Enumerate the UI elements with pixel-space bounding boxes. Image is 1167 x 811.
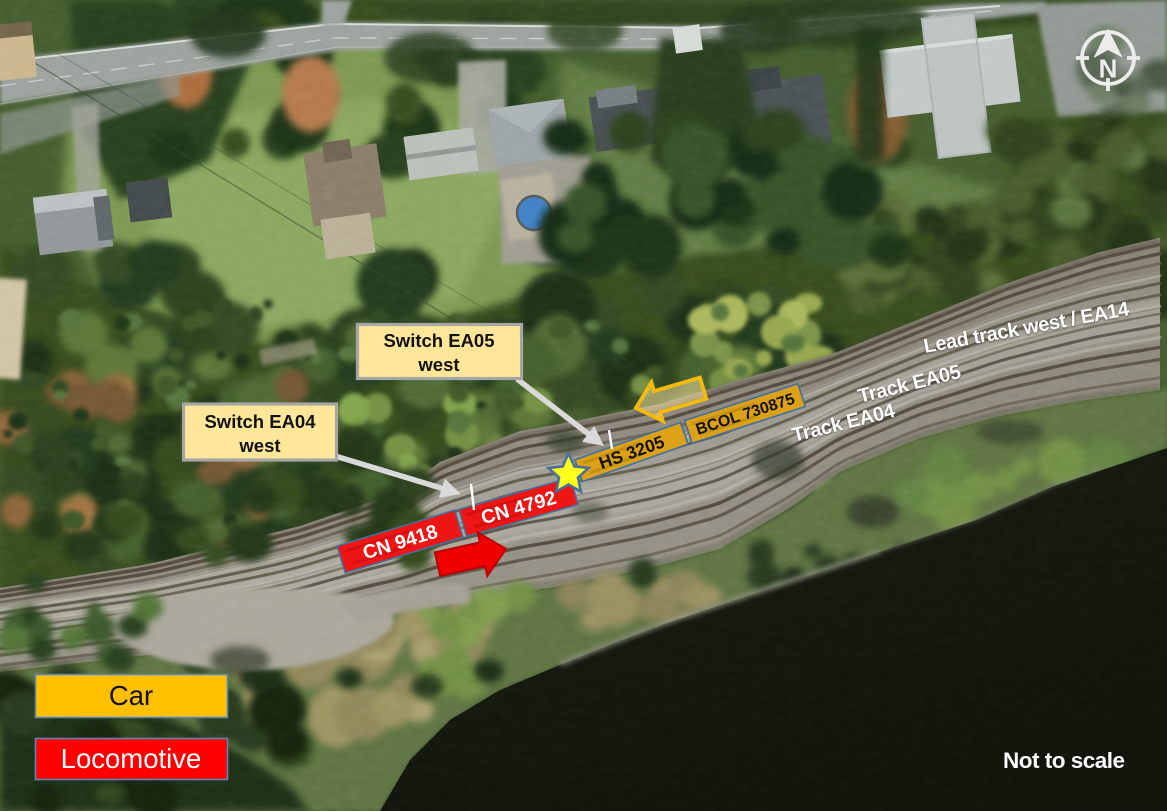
svg-text:west: west (417, 354, 459, 375)
svg-text:N: N (1099, 54, 1118, 84)
svg-text:Not to scale: Not to scale (1003, 748, 1125, 773)
svg-text:Locomotive: Locomotive (61, 743, 202, 774)
svg-text:Switch EA05: Switch EA05 (383, 330, 494, 351)
svg-text:Car: Car (109, 680, 153, 711)
svg-text:Switch EA04: Switch EA04 (204, 411, 316, 432)
svg-text:west: west (238, 435, 280, 456)
